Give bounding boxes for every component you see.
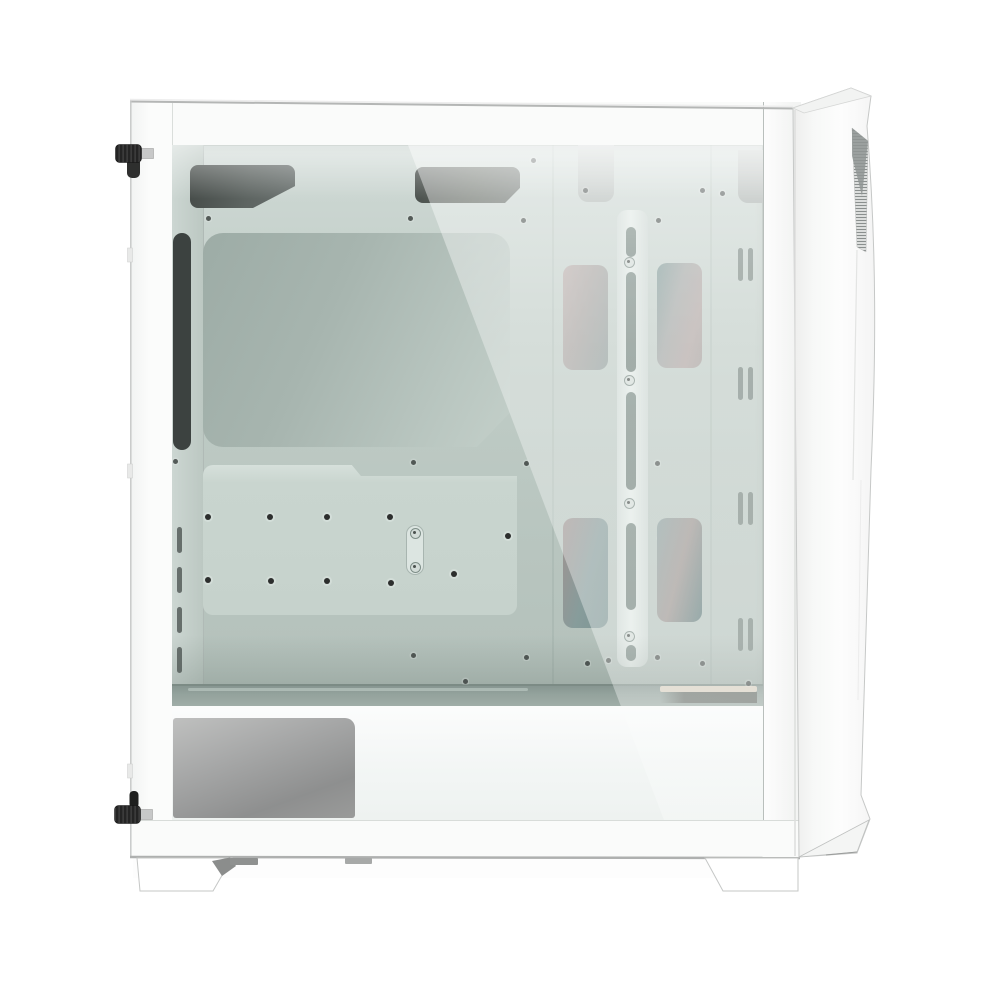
product-photo-pc-case [0,0,1000,1000]
side-panel-frame-right [763,102,801,857]
front-panel-fin-shadow [826,852,857,855]
side-panel-frame-top [130,102,800,146]
front-panel-fin [799,820,869,857]
side-panel-frame-bottom [130,820,800,858]
front-panel-top-wedge [793,88,871,113]
front-panel [793,88,875,857]
front-mesh-dark-cap [852,128,868,196]
front-mesh-strip [852,128,868,252]
front-panel-crease-upper [853,250,857,480]
side-panel-frame-left [130,102,173,857]
case-bottom-strip [133,858,797,878]
front-panel-crease-lower [858,480,861,700]
glass-top-sheen [172,145,763,820]
tempered-glass-window [172,145,763,820]
